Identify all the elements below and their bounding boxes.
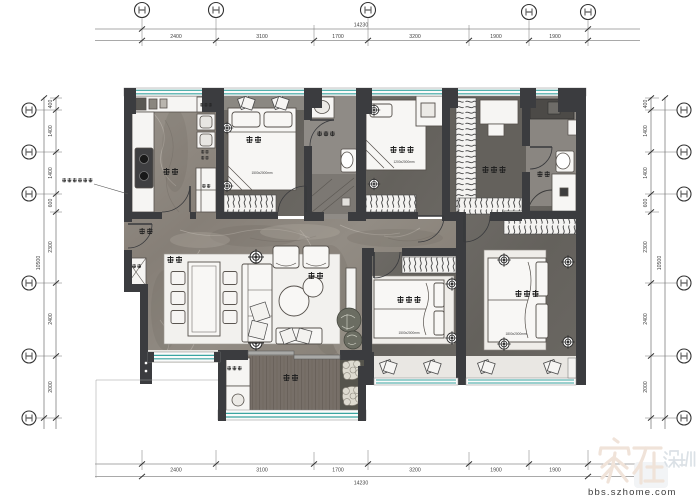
svg-text:3200: 3200 [409,468,421,474]
svg-text:14230: 14230 [354,481,369,487]
svg-text:1400: 1400 [48,167,54,179]
svg-text:10500: 10500 [657,256,663,271]
svg-text:2400: 2400 [170,468,182,474]
svg-text:1900: 1900 [549,34,561,40]
svg-text:2000: 2000 [643,381,649,393]
svg-text:1800x2000mm: 1800x2000mm [505,332,526,336]
svg-text:2400: 2400 [48,313,54,325]
svg-text:3100: 3100 [256,468,268,474]
svg-text:3100: 3100 [256,34,268,40]
svg-text:1900: 1900 [490,34,502,40]
svg-text:bbs.szhome.com: bbs.szhome.com [588,487,677,498]
svg-text:1700: 1700 [332,34,344,40]
svg-text:2300: 2300 [48,241,54,253]
svg-text:1700: 1700 [332,468,344,474]
svg-text:1500x2000mm: 1500x2000mm [251,171,272,175]
svg-text:14230: 14230 [354,23,369,29]
svg-text:600: 600 [643,199,649,208]
svg-text:1900: 1900 [490,468,502,474]
svg-text:1400: 1400 [643,167,649,179]
svg-text:10500: 10500 [36,256,42,271]
svg-text:600: 600 [48,199,54,208]
svg-text:400: 400 [48,100,54,109]
svg-text:2400: 2400 [170,34,182,40]
svg-text:3200: 3200 [409,34,421,40]
svg-text:1400: 1400 [643,125,649,137]
svg-text:1200x2000mm: 1200x2000mm [393,160,414,164]
svg-text:1500x2000mm: 1500x2000mm [398,331,419,335]
svg-text:2000: 2000 [48,381,54,393]
svg-text:400: 400 [643,100,649,109]
svg-text:2300: 2300 [643,241,649,253]
svg-text:1400: 1400 [48,125,54,137]
svg-text:1900: 1900 [549,468,561,474]
svg-text:2400: 2400 [643,313,649,325]
